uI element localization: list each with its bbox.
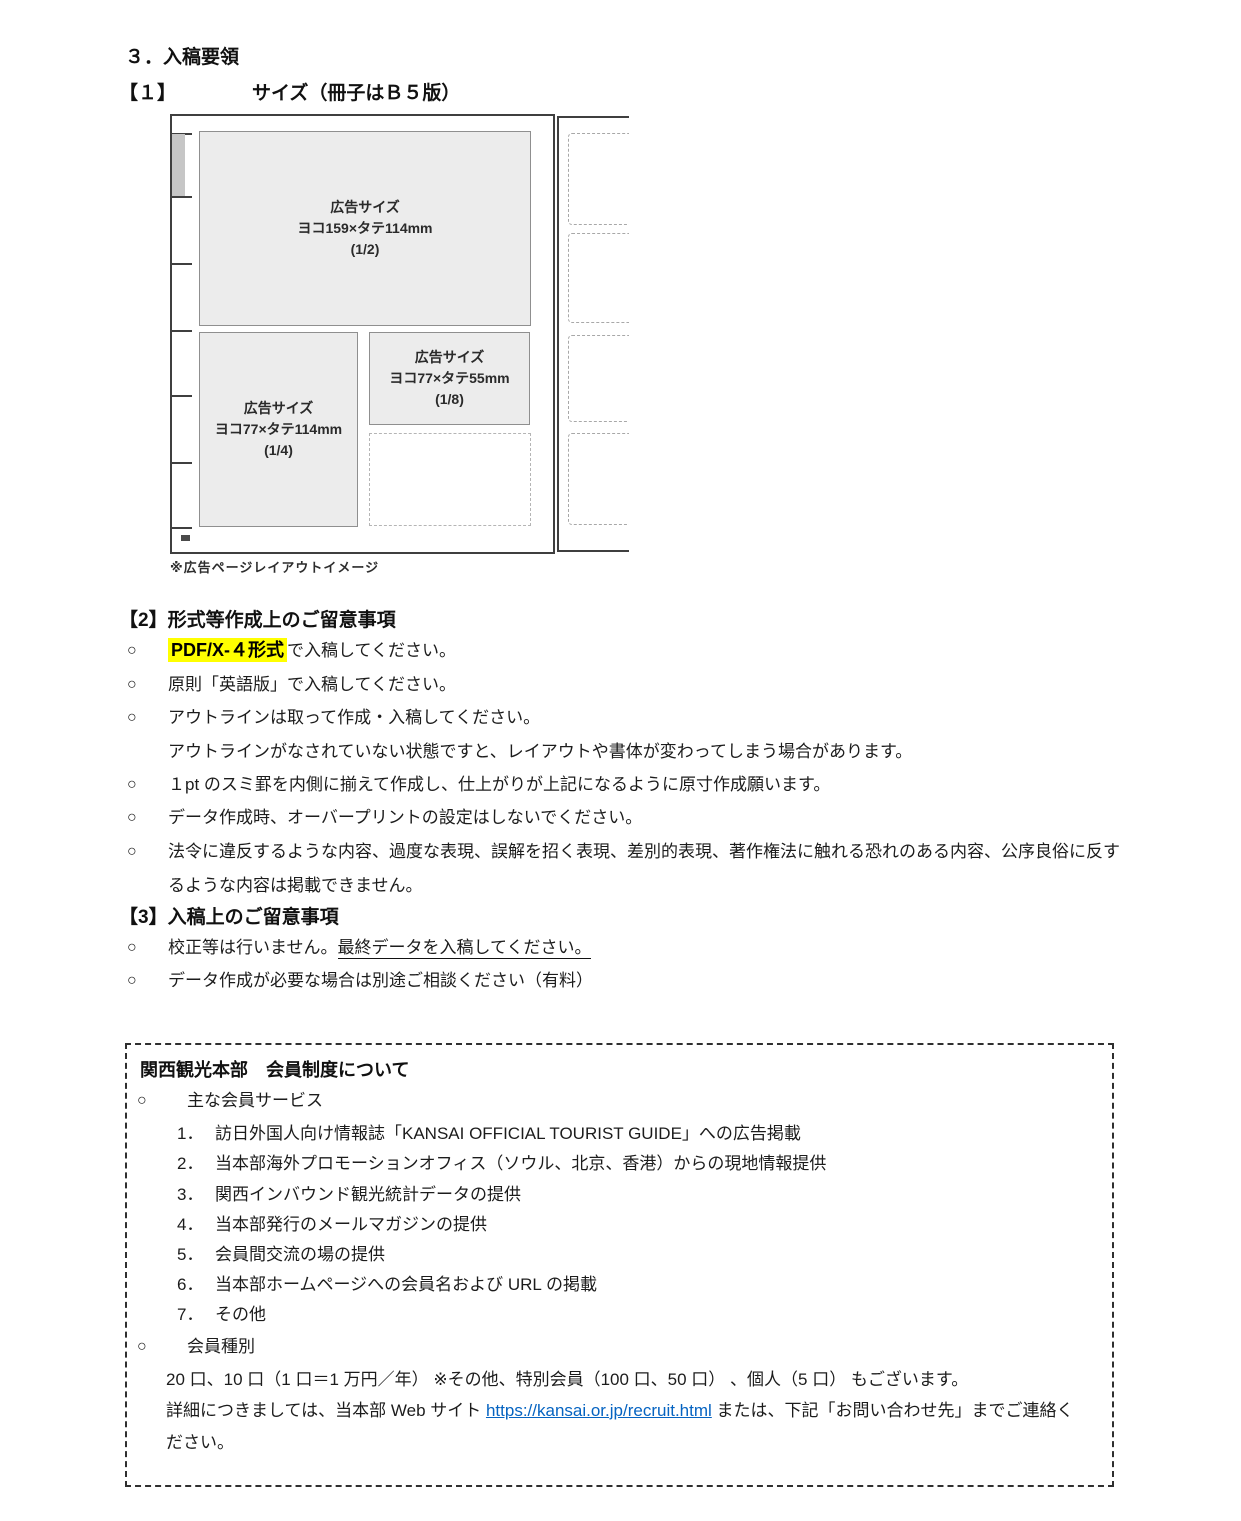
list-item-no-proofing: ○ 校正等は行いません。最終データを入稿してください。 [127, 936, 591, 959]
membership-title: 関西観光本部 会員制度について [140, 1056, 409, 1082]
item-text: アウトラインは取って作成・入稿してください。 [168, 706, 540, 729]
ruler-tick [170, 527, 192, 529]
highlight-pdfx4: PDF/X-４形式 [168, 638, 287, 662]
item-text: 法令に違反するような内容、過度な表現、誤解を招く表現、差別的表現、著作権法に触れ… [168, 840, 1120, 863]
recruit-url-link[interactable]: https://kansai.or.jp/recruit.html [486, 1401, 712, 1420]
ruler-tick [170, 196, 192, 198]
empty-ad-slot [369, 433, 531, 526]
item-text: １pt のスミ罫を内側に揃えて作成し、仕上がりが上記になるように原寸作成願います… [168, 773, 830, 796]
section1-number: 【１】 [119, 78, 176, 105]
item-text-rest: で入稿してください。 [287, 641, 456, 660]
ad-quarter-fraction: (1/4) [264, 440, 293, 461]
bullet-circle-icon: ○ [127, 639, 168, 662]
contact-text-post: または、下記「お問い合わせ先」までご連絡く [712, 1401, 1074, 1420]
service-number: 4． [177, 1213, 215, 1236]
service-number: 2． [177, 1152, 215, 1175]
service-text: 当本部ホームページへの会員名および URL の掲載 [215, 1273, 597, 1296]
service-item: 4． 当本部発行のメールマガジンの提供 [177, 1213, 487, 1236]
bullet-circle-icon: ○ [127, 706, 168, 729]
bullet-circle-icon: ○ [127, 969, 168, 992]
ad-quarter-title: 広告サイズ [244, 398, 314, 419]
item-text: データ作成が必要な場合は別途ご相談ください（有料） [168, 969, 593, 992]
item-text: 校正等は行いません。最終データを入稿してください。 [168, 936, 591, 959]
list-item-content-rules-line2: るような内容は掲載できません。 [168, 874, 423, 897]
list-item-overprint: ○ データ作成時、オーバープリントの設定はしないでください。 [127, 806, 642, 829]
item-text: PDF/X-４形式で入稿してください。 [168, 639, 456, 662]
service-number: 3． [177, 1183, 215, 1206]
underlined-final-data: 最終データを入稿してください。 [338, 938, 592, 959]
page-margin-tab [172, 134, 185, 196]
service-item: 3． 関西インバウンド観光統計データの提供 [177, 1183, 521, 1206]
bullet-circle-icon: ○ [137, 1335, 187, 1358]
bullet-circle-icon: ○ [127, 773, 168, 796]
service-item: 2． 当本部海外プロモーションオフィス（ソウル、北京、香港）からの現地情報提供 [177, 1152, 826, 1175]
ad-half-fraction: (1/2) [351, 239, 380, 260]
section1-heading: サイズ（冊子はＢ５版） [252, 78, 460, 105]
service-number: 1． [177, 1122, 215, 1145]
list-item-data-creation: ○ データ作成が必要な場合は別途ご相談ください（有料） [127, 969, 593, 992]
service-number: 6． [177, 1273, 215, 1296]
section3-heading: 【3】入稿上のご留意事項 [119, 902, 339, 929]
list-item-content-rules: ○ 法令に違反するような内容、過度な表現、誤解を招く表現、差別的表現、著作権法に… [127, 840, 1120, 863]
item-text: 原則「英語版」で入稿してください。 [168, 673, 456, 696]
membership-contact-line: 詳細につきましては、当本部 Web サイト https://kansai.or.… [166, 1399, 1106, 1422]
ruler-tick [170, 395, 192, 397]
ruler-tick [170, 263, 192, 265]
membership-services-heading-row: ○ 主な会員サービス [137, 1089, 323, 1112]
service-text: 当本部発行のメールマガジンの提供 [215, 1213, 487, 1236]
membership-contact-line2: ださい。 [166, 1431, 234, 1454]
right-page-ad-slot [568, 133, 629, 225]
contact-text-pre: 詳細につきましては、当本部 Web サイト [166, 1401, 486, 1420]
service-text: 当本部海外プロモーションオフィス（ソウル、北京、香港）からの現地情報提供 [215, 1152, 826, 1175]
bullet-circle-icon: ○ [127, 806, 168, 829]
ad-eighth-title: 広告サイズ [415, 347, 485, 368]
ad-eighth-fraction: (1/8) [435, 389, 464, 410]
ad-box-quarter: 広告サイズ ヨコ77×タテ114mm (1/4) [199, 332, 358, 527]
item-text-plain: 校正等は行いません。 [168, 938, 338, 957]
right-page-ad-slot [568, 233, 629, 323]
service-text: 訪日外国人向け情報誌「KANSAI OFFICIAL TOURIST GUIDE… [215, 1122, 801, 1145]
ad-quarter-size: ヨコ77×タテ114mm [215, 419, 342, 440]
bullet-circle-icon: ○ [127, 936, 168, 959]
ruler-tick [170, 330, 192, 332]
right-page-ad-slot [568, 433, 629, 525]
service-item: 1． 訪日外国人向け情報誌「KANSAI OFFICIAL TOURIST GU… [177, 1122, 801, 1145]
ad-box-half: 広告サイズ ヨコ159×タテ114mm (1/2) [199, 131, 531, 326]
list-item-1pt-border: ○ １pt のスミ罫を内側に揃えて作成し、仕上がりが上記になるように原寸作成願い… [127, 773, 830, 796]
service-text: 関西インバウンド観光統計データの提供 [215, 1183, 521, 1206]
list-item-pdf-format: ○ PDF/X-４形式で入稿してください。 [127, 639, 456, 662]
bullet-circle-icon: ○ [127, 673, 168, 696]
service-number: 7． [177, 1303, 215, 1326]
ad-half-size: ヨコ159×タテ114mm [297, 218, 432, 239]
membership-types-detail: 20 口、10 口（1 口＝1 万円／年） ※その他、特別会員（100 口、50… [166, 1368, 968, 1391]
ad-box-eighth: 広告サイズ ヨコ77×タテ55mm (1/8) [369, 332, 530, 425]
types-heading: 会員種別 [187, 1335, 255, 1358]
ad-layout-diagram: 広告サイズ ヨコ159×タテ114mm (1/2) 広告サイズ ヨコ77×タテ1… [170, 114, 629, 556]
service-item: 6． 当本部ホームページへの会員名および URL の掲載 [177, 1273, 597, 1296]
right-page-ad-slot [568, 335, 629, 422]
bullet-circle-icon: ○ [127, 840, 168, 863]
ruler-tick [170, 462, 192, 464]
item-text: データ作成時、オーバープリントの設定はしないでください。 [168, 806, 642, 829]
services-heading: 主な会員サービス [187, 1089, 323, 1112]
ad-half-title: 広告サイズ [330, 197, 400, 218]
diagram-caption: ※広告ページレイアウトイメージ [170, 557, 379, 576]
service-item: 5． 会員間交流の場の提供 [177, 1243, 385, 1266]
page-number-mark [181, 535, 190, 541]
list-item-outline: ○ アウトラインは取って作成・入稿してください。 [127, 706, 540, 729]
bullet-circle-icon: ○ [137, 1089, 187, 1112]
membership-types-heading-row: ○ 会員種別 [137, 1335, 255, 1358]
service-text: その他 [215, 1303, 266, 1326]
service-item: 7． その他 [177, 1303, 266, 1326]
service-text: 会員間交流の場の提供 [215, 1243, 385, 1266]
page-title: ３．入稿要領 [125, 42, 239, 69]
service-number: 5． [177, 1243, 215, 1266]
ad-eighth-size: ヨコ77×タテ55mm [389, 368, 509, 389]
list-item-english-version: ○ 原則「英語版」で入稿してください。 [127, 673, 456, 696]
section2-heading: 【2】形式等作成上のご留意事項 [119, 605, 396, 632]
list-item-outline-note: アウトラインがなされていない状態ですと、レイアウトや書体が変わってしまう場合があ… [168, 740, 912, 763]
